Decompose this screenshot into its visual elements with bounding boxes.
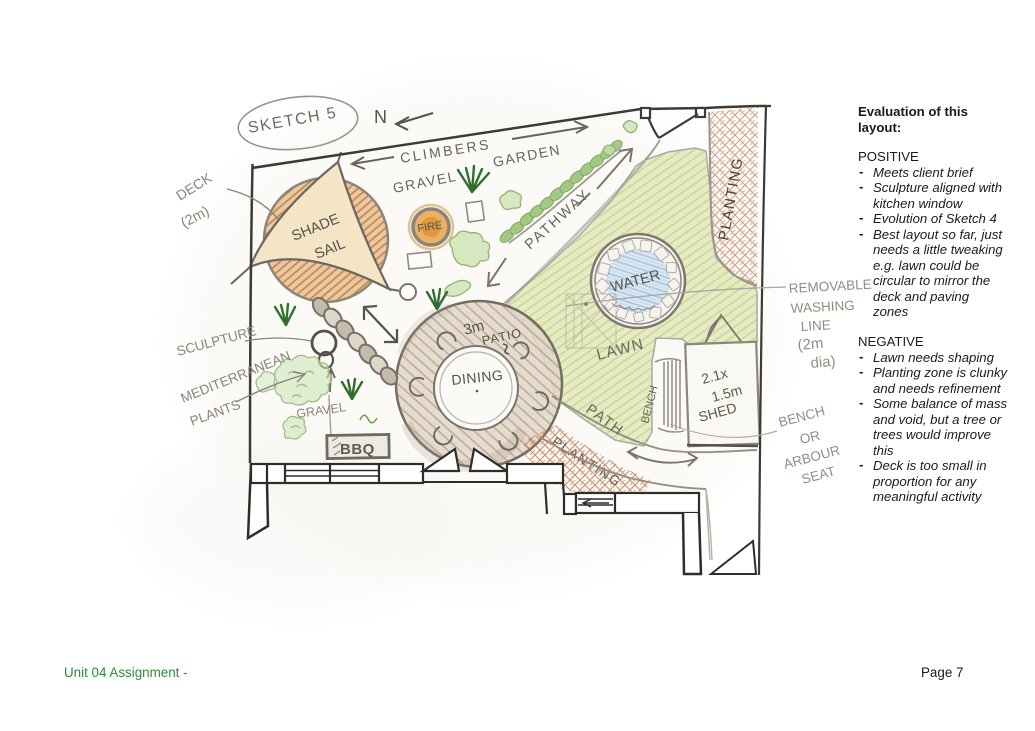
svg-text:WASHING: WASHING	[790, 298, 855, 316]
svg-text:BENCH: BENCH	[777, 403, 827, 430]
svg-text:OR: OR	[798, 428, 821, 447]
svg-text:dia): dia)	[810, 353, 836, 372]
svg-text:BBQ: BBQ	[340, 441, 375, 458]
svg-text:DECK: DECK	[173, 169, 215, 204]
svg-text:SEAT: SEAT	[800, 464, 837, 487]
svg-text:(2m: (2m	[797, 335, 824, 354]
svg-text:N: N	[374, 107, 387, 127]
svg-text:LINE: LINE	[800, 317, 831, 334]
